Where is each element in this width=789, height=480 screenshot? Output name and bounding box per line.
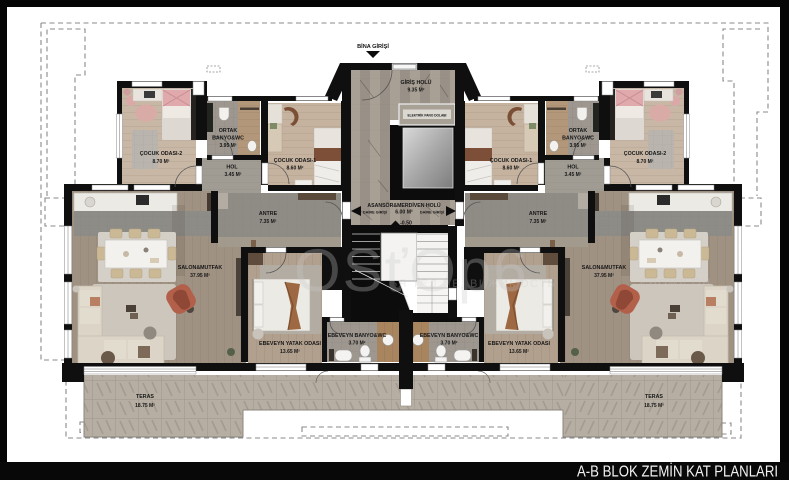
svg-text:HOL: HOL — [226, 165, 238, 171]
svg-text:18.75 M²: 18.75 M² — [644, 403, 664, 409]
svg-text:7.35 M²: 7.35 M² — [530, 219, 547, 225]
svg-text:7.35 M²: 7.35 M² — [260, 219, 277, 225]
svg-text:EBEVEYN YATAK ODASI: EBEVEYN YATAK ODASI — [488, 341, 550, 347]
svg-text:9.35 M²: 9.35 M² — [408, 88, 425, 94]
svg-text:ЕНОМЛ ОН: ЕНОМЛ ОН — [640, 277, 712, 289]
svg-text:ANTRE: ANTRE — [529, 211, 548, 217]
svg-text:3.95 M²: 3.95 M² — [570, 143, 587, 149]
svg-text:3.45 M²: 3.45 M² — [225, 172, 242, 178]
svg-text:DAİRE GİRİŞİ: DAİRE GİRİŞİ — [420, 211, 444, 215]
svg-text:8.60 M²: 8.60 M² — [503, 166, 520, 172]
svg-text:GİRİŞ HOLÜ: GİRİŞ HOLÜ — [401, 79, 432, 86]
svg-text:ÇOCUK ODASI-1: ÇOCUK ODASI-1 — [274, 158, 316, 164]
svg-text:ORTAK: ORTAK — [219, 128, 238, 134]
svg-text:TERAS: TERAS — [645, 394, 663, 400]
svg-text:37.95 M²: 37.95 M² — [594, 273, 614, 279]
svg-text:3.45 M²: 3.45 M² — [565, 172, 582, 178]
svg-text:13.65 M²: 13.65 M² — [280, 349, 300, 355]
svg-text:8.60 M²: 8.60 M² — [287, 166, 304, 172]
svg-text:6.00 M²: 6.00 M² — [395, 210, 413, 216]
svg-text:3.95 M²: 3.95 M² — [220, 143, 237, 149]
svg-text:BİNA GİRİŞİ: BİNA GİRİŞİ — [357, 43, 389, 50]
svg-text:A-B BLOK ZEMİN KAT PLANLARI: A-B BLOK ZEMİN KAT PLANLARI — [577, 462, 778, 480]
svg-text:ANTRE: ANTRE — [259, 211, 278, 217]
svg-text:ÇOCUK ODASI-1: ÇOCUK ODASI-1 — [490, 158, 532, 164]
svg-text:TERAS: TERAS — [136, 394, 154, 400]
svg-text:3.70 M²: 3.70 M² — [349, 341, 366, 347]
svg-text:37.95 M²: 37.95 M² — [190, 273, 210, 279]
svg-text:EBEVEYN YATAK ODASI: EBEVEYN YATAK ODASI — [259, 341, 321, 347]
svg-text:ORTAK: ORTAK — [569, 128, 588, 134]
svg-text:8.70 M²: 8.70 M² — [637, 159, 654, 165]
svg-text:ЬЯ ТЕД НЕДВИЖИМОСТЬ: ЬЯ ТЕД НЕДВИЖИМОСТЬ — [390, 278, 556, 290]
svg-text:3.70 M²: 3.70 M² — [441, 341, 458, 347]
svg-text:ÇOCUK ODASI-2: ÇOCUK ODASI-2 — [140, 151, 182, 157]
svg-text:EBEVEYN BANYO&WC: EBEVEYN BANYO&WC — [420, 333, 479, 339]
svg-text:SALON&MUTFAK: SALON&MUTFAK — [582, 265, 627, 271]
svg-text:8.70 M²: 8.70 M² — [153, 159, 170, 165]
svg-text:ÇOCUK ODASI-2: ÇOCUK ODASI-2 — [624, 151, 666, 157]
svg-text:ELEKTRİK PANO DOLABI: ELEKTRİK PANO DOLABI — [408, 114, 447, 118]
svg-text:DAİRE GİRİŞİ: DAİRE GİRİŞİ — [363, 211, 387, 215]
svg-text:13.65 M²: 13.65 M² — [509, 349, 529, 355]
svg-text:OSťOp6: OSťOp6 — [294, 237, 529, 304]
svg-text:-0.50: -0.50 — [400, 221, 412, 227]
svg-text:BANYO&WC: BANYO&WC — [212, 136, 244, 142]
svg-text:18.75 M²: 18.75 M² — [135, 403, 155, 409]
svg-text:SALON&MUTFAK: SALON&MUTFAK — [178, 265, 223, 271]
svg-text:BANYO&WC: BANYO&WC — [562, 136, 594, 142]
svg-text:ASANSÖR&MERDİVEN HOLÜ: ASANSÖR&MERDİVEN HOLÜ — [367, 202, 440, 209]
svg-text:EBEVEYN BANYO&WC: EBEVEYN BANYO&WC — [328, 333, 387, 339]
svg-text:HOL: HOL — [567, 165, 579, 171]
